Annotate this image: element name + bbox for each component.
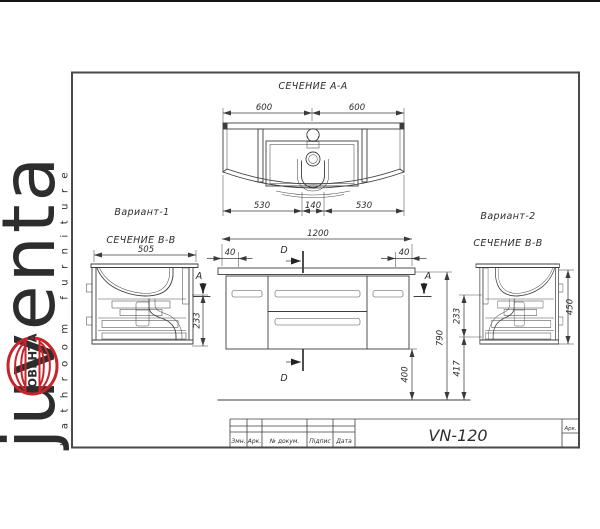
dim-front-400: 400: [401, 366, 411, 382]
titleblock-col-change: Змн.: [231, 438, 245, 445]
dim-aa-530-left: 530: [254, 201, 270, 211]
titleblock-sheet-cell: Арк.: [563, 426, 577, 432]
section-mark-a-right: A: [424, 271, 432, 282]
variant1-label: Вариант-1: [114, 207, 169, 218]
titleblock-col-date: Дата: [335, 438, 352, 445]
globe-emblem-text: ЮВЕНТА: [26, 333, 40, 391]
dim-v2-233: 233: [453, 308, 463, 324]
section-aa-view: СЕЧЕНИЕ А-А 600 600: [223, 81, 404, 216]
page-top-edge: [0, 0, 600, 2]
titleblock-col-sign: Підпис: [309, 438, 331, 445]
variant2-section-label: СЕЧЕНИЕ В-В: [473, 238, 542, 249]
dim-front-40-right: 40: [399, 248, 410, 258]
section-aa-title: СЕЧЕНИЕ А-А: [278, 81, 347, 92]
brand-tagline: bathroom furniture: [60, 162, 71, 446]
dim-v2-417: 417: [453, 360, 463, 377]
cabinet-side-section: [87, 264, 199, 344]
dim-v1-505: 505: [138, 245, 154, 255]
dim-aa-600-left: 600: [256, 103, 272, 113]
dim-aa-530-right: 530: [356, 201, 372, 211]
dim-front-1200: 1200: [307, 229, 329, 239]
dim-front-790: 790: [436, 330, 446, 346]
cabinet-side-section-mirrored: [476, 264, 563, 344]
variant2-label: Вариант-2: [480, 211, 535, 222]
model-number: VN-120: [428, 426, 487, 445]
titleblock-col-doc: № докум.: [269, 438, 300, 445]
dim-v2-450: 450: [566, 299, 576, 315]
dim-aa-140: 140: [305, 201, 321, 211]
section-mark-d-bottom: D: [280, 373, 287, 384]
section-mark-d-top: D: [280, 245, 287, 256]
brand-logo: juventa bathroom furniture ЮВЕНТА: [0, 154, 72, 451]
technical-drawing-svg: juventa bathroom furniture ЮВЕНТА СЕЧЕНИ…: [0, 0, 600, 529]
title-block: Змн. Арк. № докум. Підпис Дата Арк. VN-1…: [230, 419, 579, 447]
dim-v1-233: 233: [193, 312, 203, 328]
section-mark-a-left: A: [195, 271, 203, 282]
variant2-dimensions: 450 233 417: [453, 270, 576, 400]
drawing-sheet: juventa bathroom furniture ЮВЕНТА СЕЧЕНИ…: [0, 0, 600, 529]
front-view: 1200 40 40 D A A D: [193, 229, 470, 400]
titleblock-col-sheet: Арк.: [247, 438, 262, 445]
dim-aa-600-right: 600: [349, 103, 365, 113]
dim-front-40-left: 40: [225, 248, 236, 258]
